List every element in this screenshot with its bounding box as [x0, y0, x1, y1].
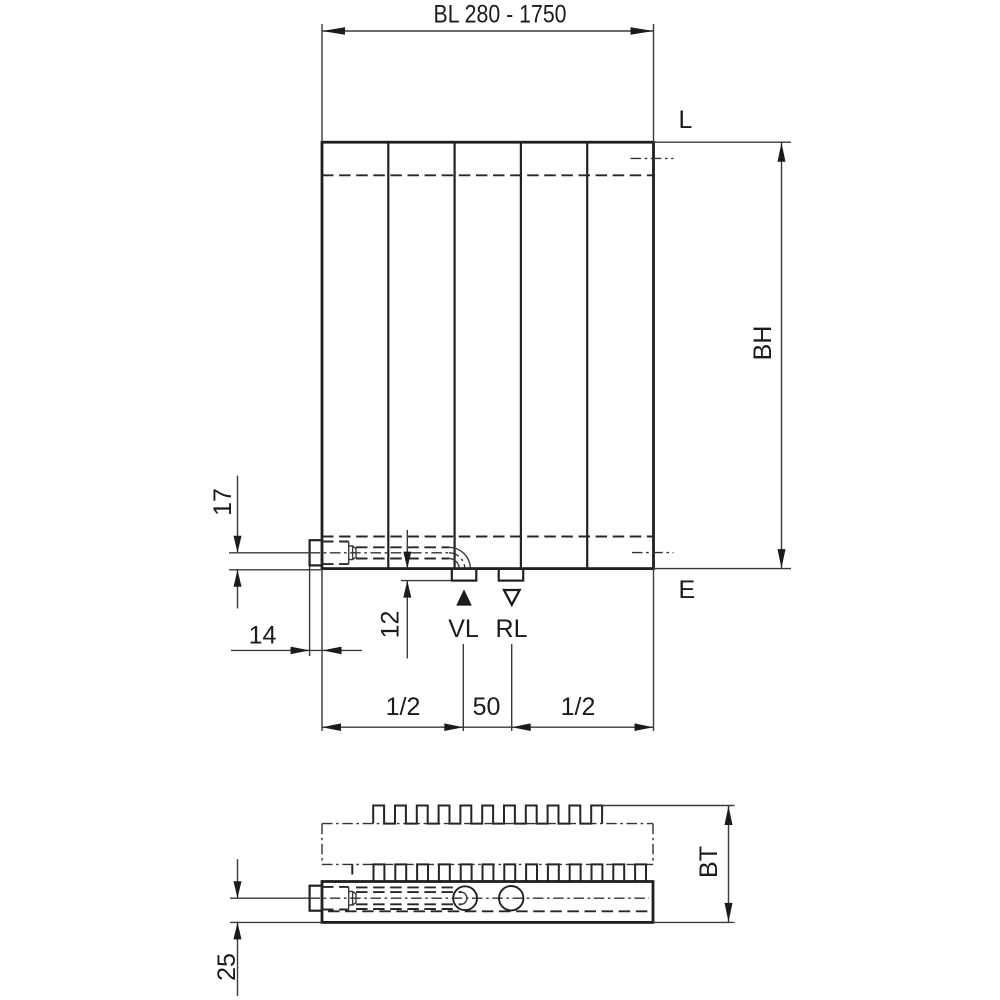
- svg-text:VL: VL: [448, 615, 479, 643]
- svg-text:BT: BT: [695, 846, 723, 878]
- svg-text:25: 25: [213, 953, 241, 981]
- svg-text:BL 280 - 1750: BL 280 - 1750: [434, 1, 567, 29]
- svg-text:E: E: [679, 576, 696, 604]
- svg-text:50: 50: [473, 693, 501, 721]
- svg-text:12: 12: [377, 611, 405, 639]
- svg-text:14: 14: [249, 622, 277, 650]
- svg-text:1/2: 1/2: [561, 693, 596, 721]
- svg-text:1/2: 1/2: [386, 693, 421, 721]
- svg-text:17: 17: [209, 488, 237, 516]
- svg-text:BH: BH: [749, 326, 777, 361]
- svg-text:RL: RL: [496, 615, 528, 643]
- svg-text:L: L: [679, 106, 693, 134]
